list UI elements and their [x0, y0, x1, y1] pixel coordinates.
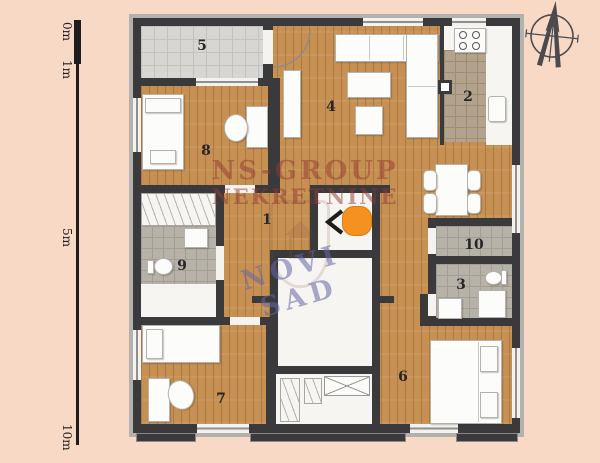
room7-right-wall — [266, 317, 276, 432]
scale-label-1m: 1m — [60, 60, 74, 79]
wardrobe-zone-right-wall — [372, 366, 380, 432]
exterior-slab-right — [456, 433, 518, 442]
wardrobe-crossed-cabinet — [324, 376, 370, 396]
scale-label-10m: 10m — [60, 424, 74, 451]
sink-kitchen — [488, 96, 506, 122]
wall-cabinet-kitchen — [438, 80, 452, 94]
chair-room8 — [224, 114, 248, 142]
emblem-house-body — [289, 235, 311, 259]
rooms10-3-divider-wall — [436, 256, 512, 264]
stove-burner-3 — [459, 42, 467, 50]
door-gap-bath9 — [216, 246, 224, 280]
shaft-right-wall — [372, 185, 380, 374]
pillow-room7 — [146, 329, 163, 359]
window-left-room8 — [133, 98, 141, 152]
window-bottom-room6 — [410, 424, 458, 433]
room8-bottom-wall — [141, 185, 280, 193]
anteroom-below-bath9 — [141, 284, 216, 317]
window-right-dining — [512, 165, 520, 233]
dining-chair-1 — [423, 170, 437, 191]
room-number-10: 10 — [462, 237, 486, 253]
door-gap-terrace — [263, 30, 273, 64]
kitchen-counter-right — [486, 26, 512, 145]
rooms10-3-bottom-wall — [428, 318, 512, 326]
corridor-stub-right — [380, 296, 394, 303]
pillow-room6-bottom — [480, 392, 498, 418]
door-gap-room8 — [225, 185, 255, 193]
exterior-slab-left — [136, 433, 196, 442]
dining-chair-4 — [467, 193, 481, 214]
entrance-marker — [342, 206, 372, 236]
room-number-5: 5 — [190, 38, 214, 54]
corridor-stub-left — [252, 296, 270, 303]
window-left-room7 — [133, 330, 141, 380]
coffee-table-living — [347, 72, 391, 98]
window-terrace-room8 — [196, 78, 258, 86]
room-number-9: 9 — [170, 258, 194, 274]
sink-bath3 — [438, 298, 462, 319]
bed-foot-room8 — [150, 150, 176, 164]
sofa-seam-1 — [369, 36, 370, 60]
toilet-tank-bath9 — [147, 260, 154, 274]
room8-right-wall — [268, 78, 280, 193]
dining-table — [435, 164, 468, 216]
scale-bar-thick-segment — [74, 20, 81, 64]
bed-seam-room6 — [478, 342, 479, 422]
room6-corner-stub — [420, 294, 428, 326]
wardrobe-closet-1 — [280, 378, 300, 422]
sink-bath9 — [184, 228, 208, 248]
room-number-8: 8 — [194, 143, 218, 159]
floor-plan-canvas: 0m 1m 5m 10m — [0, 0, 600, 463]
pillow-room6-top — [480, 346, 498, 372]
sofa-seam-2 — [403, 36, 404, 60]
scale-bar: 0m 1m 5m 10m — [0, 0, 100, 463]
closet-above-bath9 — [141, 193, 216, 226]
window-bottom-room7 — [197, 424, 249, 433]
scale-bar-line — [76, 20, 79, 445]
emblem-house-roof — [285, 221, 315, 235]
desk-room7 — [148, 378, 170, 422]
toilet-bowl-bath3 — [485, 271, 502, 285]
exterior-slab-center — [250, 433, 406, 442]
compass-icon — [520, 0, 584, 80]
entrance-chevron-icon — [324, 208, 344, 236]
stove-burner-1 — [459, 31, 467, 39]
room-number-2: 2 — [456, 89, 480, 105]
tv-cabinet-living — [283, 70, 301, 138]
room-number-3: 3 — [449, 277, 473, 293]
sofa-seam-3 — [408, 86, 436, 87]
shaft-bottom-wall — [270, 366, 372, 374]
room-number-6: 6 — [391, 369, 415, 385]
door-gap-room7 — [230, 317, 260, 325]
door-arc-terrace — [273, 30, 311, 68]
wardrobe-closet-2 — [304, 378, 322, 404]
shower-bath3 — [478, 290, 506, 318]
stove-burner-2 — [472, 31, 480, 39]
scale-label-5m: 5m — [60, 228, 74, 247]
window-top-kitchen — [452, 18, 486, 26]
door-gap-bath3 — [428, 294, 436, 316]
dining-chair-3 — [467, 170, 481, 191]
agency-emblem-watermark — [270, 200, 330, 288]
door-gap-room10 — [428, 228, 436, 254]
room-number-4: 4 — [319, 99, 343, 115]
rooms10-3-top-wall — [428, 218, 512, 226]
armchair-living — [355, 106, 383, 135]
pillow-room8 — [145, 98, 181, 113]
toilet-tank-bath3 — [501, 270, 507, 285]
stove-burner-4 — [472, 42, 480, 50]
room-number-7: 7 — [209, 391, 233, 407]
scale-label-0m: 0m — [60, 22, 74, 41]
dining-chair-2 — [423, 193, 437, 214]
window-top-living — [363, 18, 423, 26]
window-right-room6 — [512, 348, 520, 418]
desk-room8 — [246, 106, 268, 148]
